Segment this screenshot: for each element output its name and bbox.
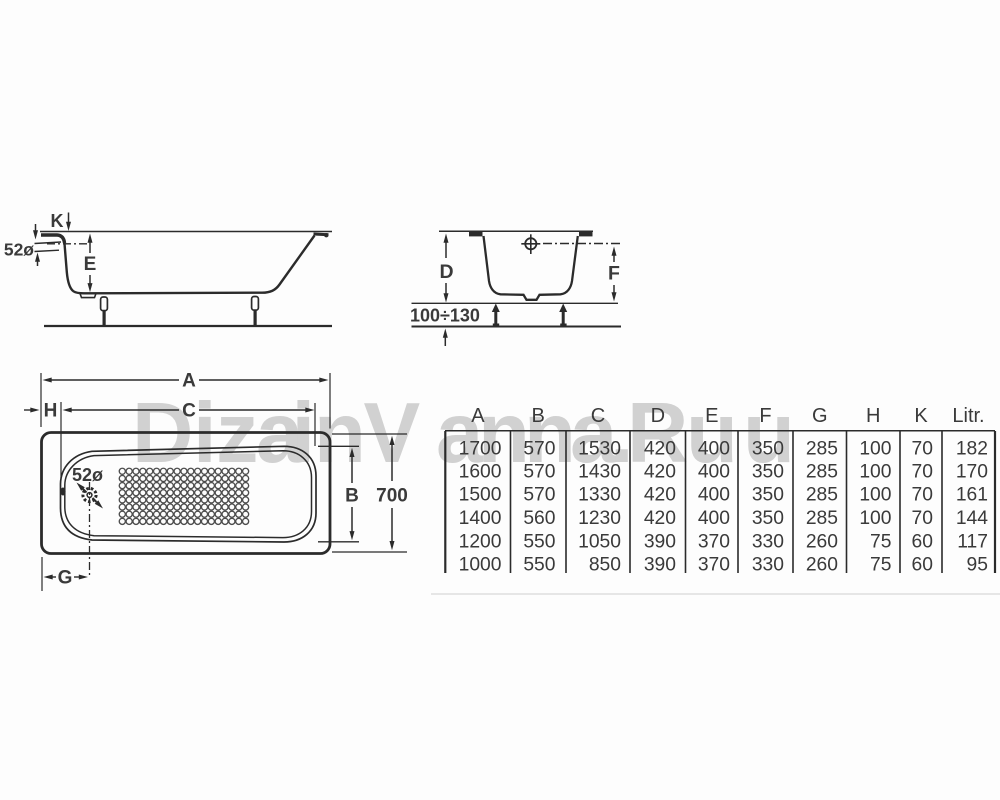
svg-text:1700: 1700: [459, 439, 502, 460]
svg-text:420: 420: [644, 439, 676, 460]
svg-text:F: F: [608, 263, 620, 285]
svg-text:K: K: [914, 405, 928, 427]
svg-text:D: D: [439, 261, 453, 283]
svg-text:70: 70: [912, 485, 933, 506]
svg-text:370: 370: [698, 555, 730, 576]
svg-text:850: 850: [589, 555, 621, 576]
svg-text:182: 182: [956, 439, 988, 460]
svg-text:370: 370: [698, 532, 730, 553]
svg-text:1200: 1200: [459, 532, 502, 553]
svg-text:B: B: [345, 486, 359, 507]
svg-text:F: F: [759, 405, 771, 427]
svg-text:330: 330: [752, 555, 784, 576]
svg-text:420: 420: [644, 508, 676, 529]
svg-text:52ø: 52ø: [4, 240, 34, 260]
svg-text:1500: 1500: [459, 485, 502, 506]
svg-text:70: 70: [912, 462, 933, 483]
svg-text:350: 350: [752, 485, 784, 506]
svg-text:260: 260: [806, 555, 838, 576]
svg-text:1400: 1400: [459, 508, 502, 529]
svg-text:1600: 1600: [459, 462, 502, 483]
svg-text:C: C: [182, 401, 196, 422]
svg-text:700: 700: [376, 486, 408, 507]
svg-text:285: 285: [806, 462, 838, 483]
svg-text:117: 117: [957, 532, 988, 553]
svg-text:400: 400: [698, 485, 730, 506]
svg-text:B: B: [532, 405, 545, 427]
svg-text:285: 285: [806, 485, 838, 506]
svg-text:1430: 1430: [578, 462, 621, 483]
svg-text:E: E: [705, 405, 718, 427]
svg-text:70: 70: [912, 439, 933, 460]
svg-text:260: 260: [806, 532, 838, 553]
svg-text:100: 100: [859, 508, 891, 529]
svg-text:400: 400: [698, 439, 730, 460]
svg-text:D: D: [651, 405, 665, 427]
svg-text:C: C: [591, 405, 605, 427]
svg-text:100: 100: [859, 485, 891, 506]
svg-text:570: 570: [523, 485, 555, 506]
svg-text:Litr.: Litr.: [952, 405, 984, 427]
svg-text:1000: 1000: [459, 555, 502, 576]
svg-text:G: G: [58, 568, 73, 589]
svg-text:285: 285: [806, 508, 838, 529]
svg-text:75: 75: [870, 555, 891, 576]
svg-text:400: 400: [698, 508, 730, 529]
svg-text:285: 285: [806, 439, 838, 460]
svg-text:550: 550: [523, 532, 555, 553]
svg-text:144: 144: [956, 508, 988, 529]
svg-text:560: 560: [523, 508, 555, 529]
svg-text:100: 100: [859, 462, 891, 483]
svg-text:H: H: [866, 405, 880, 427]
svg-text:75: 75: [870, 532, 891, 553]
svg-text:1330: 1330: [578, 485, 621, 506]
svg-text:1530: 1530: [578, 439, 621, 460]
svg-text:170: 170: [956, 462, 988, 483]
svg-text:570: 570: [523, 462, 555, 483]
svg-text:330: 330: [752, 532, 784, 553]
svg-text:550: 550: [523, 555, 555, 576]
svg-text:1050: 1050: [578, 532, 621, 553]
svg-text:570: 570: [523, 439, 555, 460]
svg-text:G: G: [812, 405, 828, 427]
svg-text:350: 350: [752, 439, 784, 460]
svg-text:60: 60: [912, 532, 933, 553]
svg-text:52ø: 52ø: [72, 465, 103, 485]
svg-text:E: E: [84, 254, 97, 275]
svg-text:420: 420: [644, 485, 676, 506]
svg-text:350: 350: [752, 508, 784, 529]
svg-text:420: 420: [644, 462, 676, 483]
svg-text:A: A: [182, 371, 196, 392]
svg-text:400: 400: [698, 462, 730, 483]
svg-text:1230: 1230: [578, 508, 621, 529]
svg-text:390: 390: [644, 555, 676, 576]
svg-text:161: 161: [956, 485, 988, 506]
svg-text:K: K: [51, 211, 64, 231]
svg-text:A: A: [471, 405, 485, 427]
svg-text:390: 390: [644, 532, 676, 553]
svg-text:60: 60: [912, 555, 933, 576]
svg-text:H: H: [44, 401, 58, 422]
svg-text:70: 70: [912, 508, 933, 529]
svg-text:100: 100: [859, 439, 891, 460]
svg-text:350: 350: [752, 462, 784, 483]
svg-text:100÷130: 100÷130: [410, 306, 480, 326]
svg-text:95: 95: [967, 555, 988, 576]
